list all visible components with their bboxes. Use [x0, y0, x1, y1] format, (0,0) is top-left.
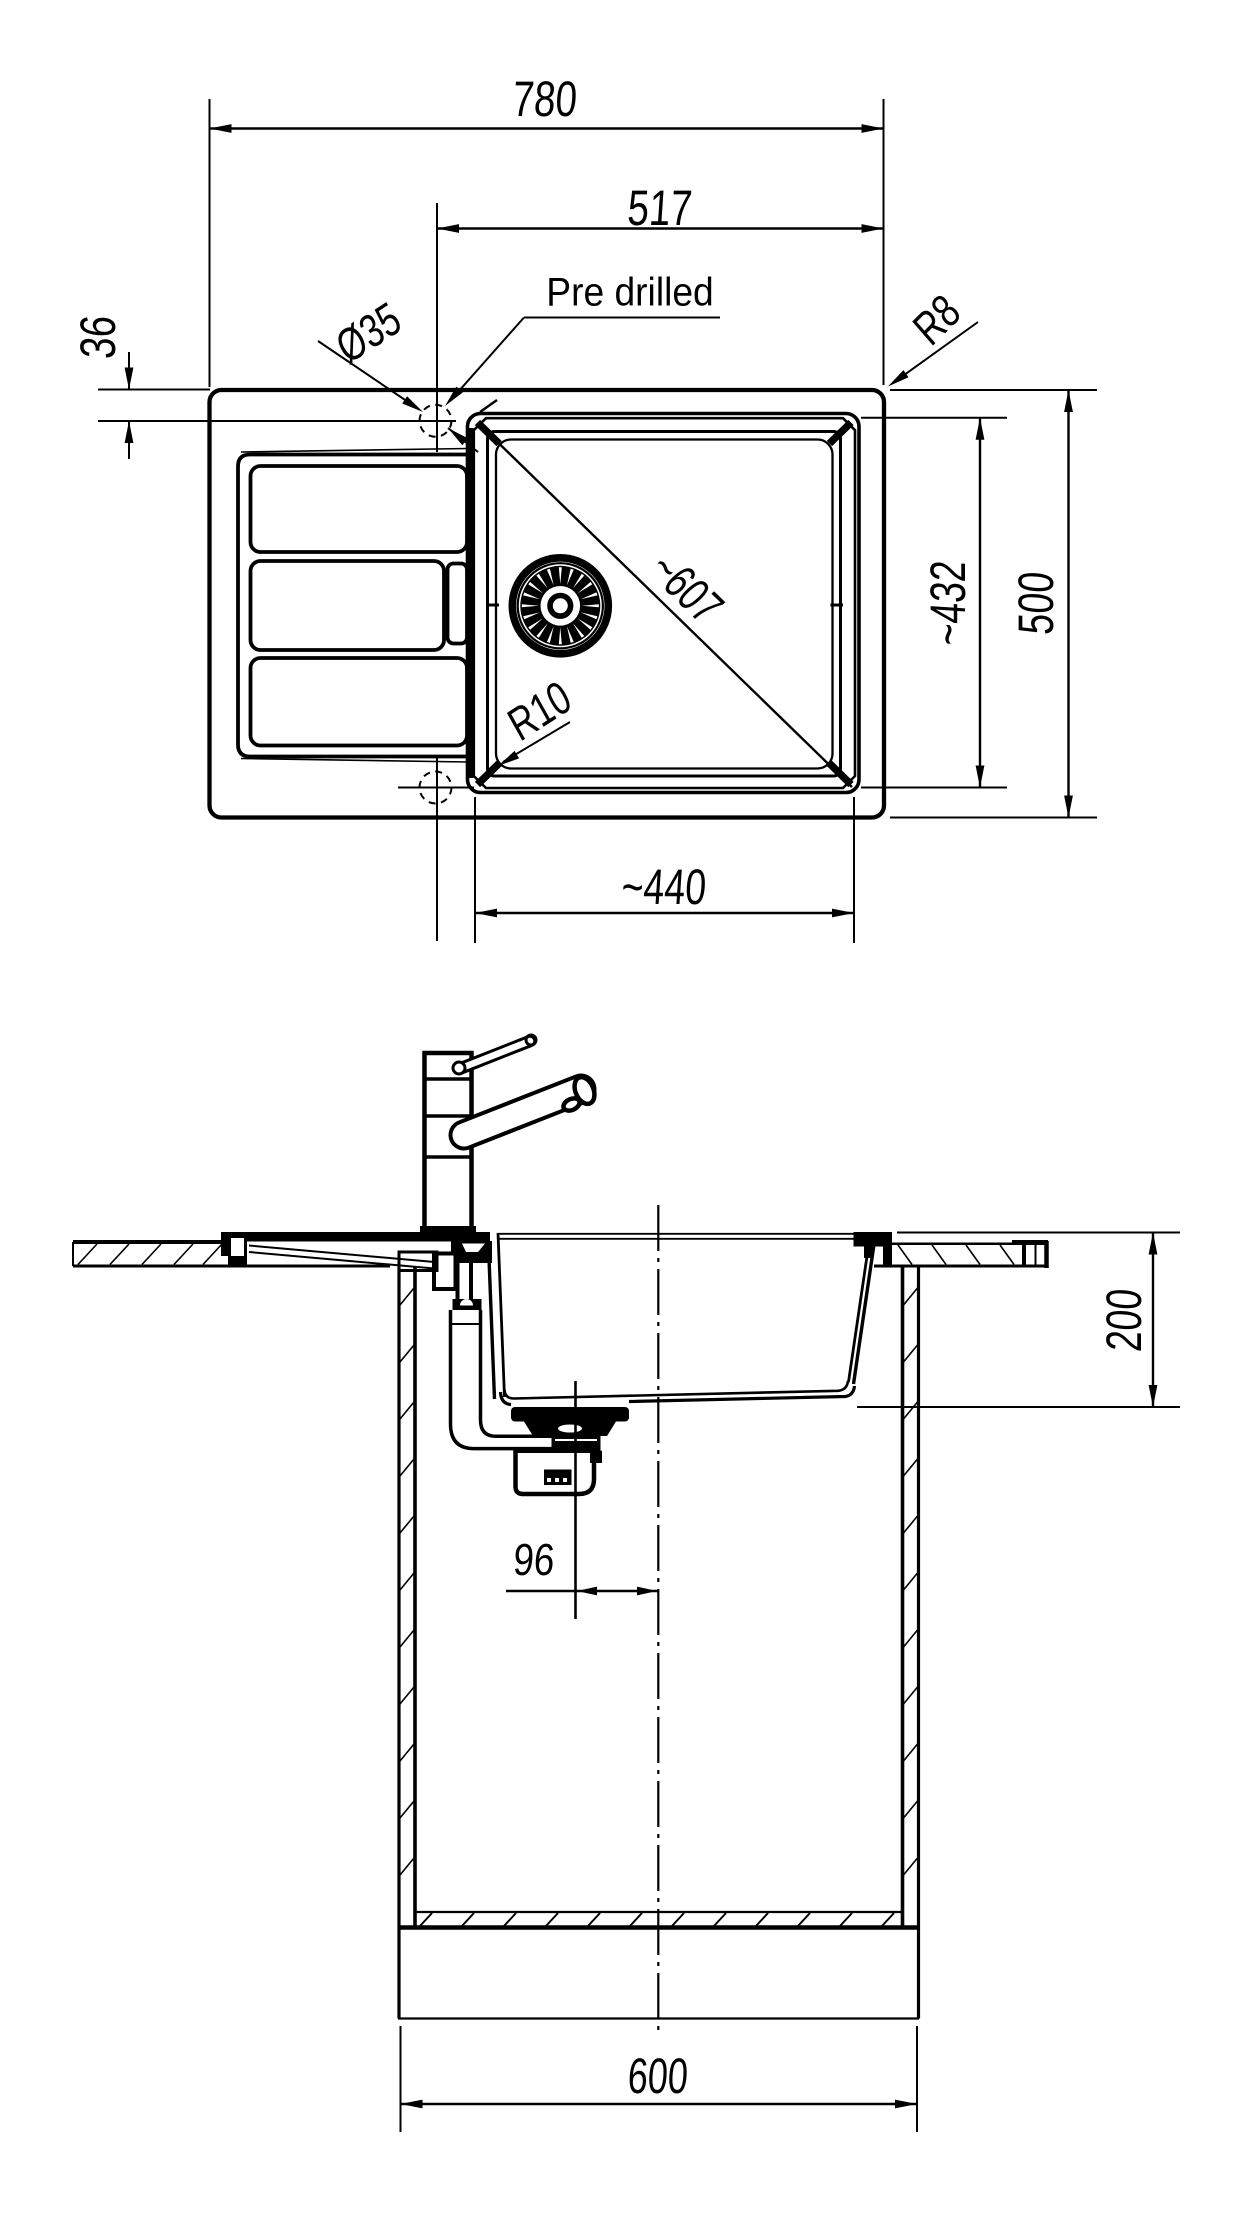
svg-text:780: 780	[511, 72, 579, 127]
svg-text:517: 517	[626, 181, 694, 236]
svg-text:96: 96	[512, 1535, 557, 1585]
svg-text:500: 500	[1009, 570, 1064, 636]
svg-text:Pre drilled: Pre drilled	[546, 270, 713, 315]
svg-text:~432: ~432	[921, 559, 976, 647]
svg-text:600: 600	[626, 2049, 690, 2104]
svg-text:~440: ~440	[620, 860, 708, 915]
svg-text:36: 36	[71, 314, 126, 361]
svg-text:200: 200	[1097, 1287, 1152, 1353]
